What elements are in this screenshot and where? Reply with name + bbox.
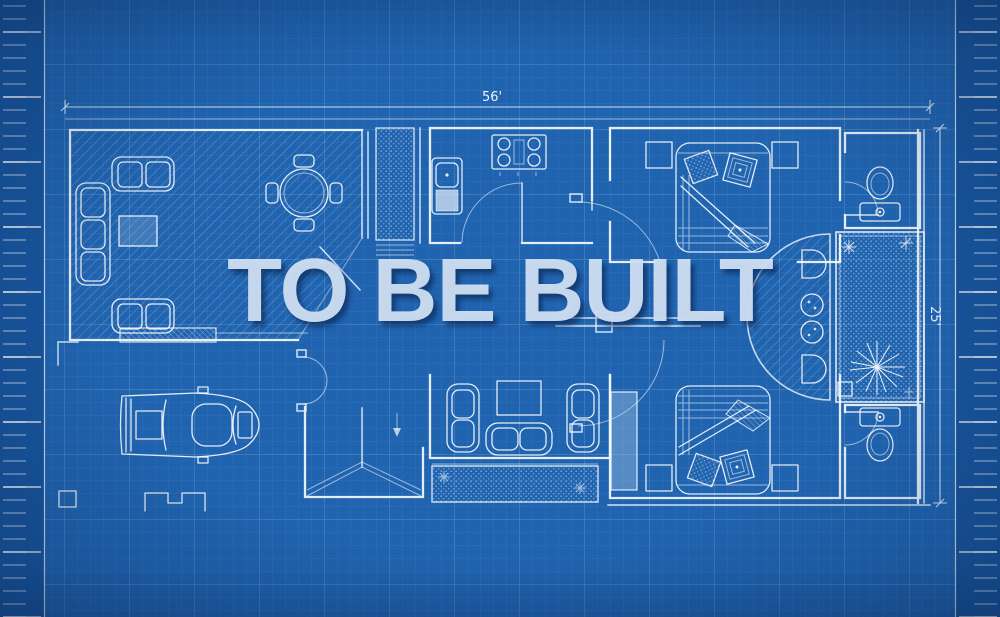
paper-noise <box>0 0 1000 617</box>
floor-plan-drawing: 56' 25' <box>0 0 1000 617</box>
blueprint-canvas: 56' 25' <box>0 0 1000 617</box>
